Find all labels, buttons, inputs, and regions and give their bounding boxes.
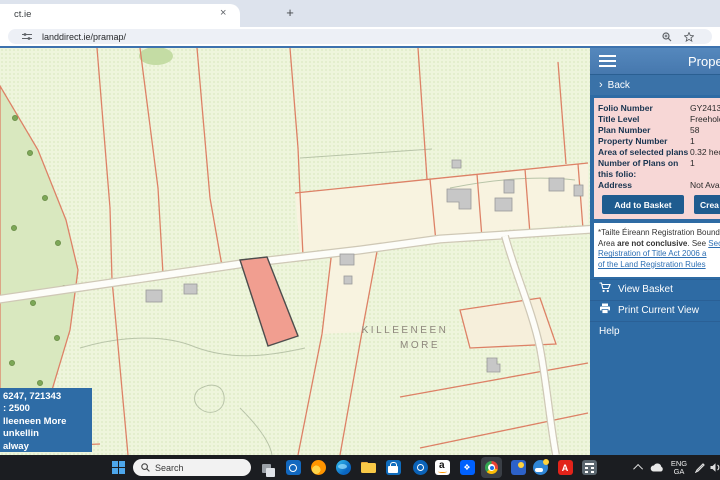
note-link-section[interactable]: Sec (708, 239, 720, 248)
acrobat-icon[interactable]: A (555, 455, 575, 480)
browser-tab[interactable]: ct.ie × (0, 4, 240, 27)
file-explorer-icon[interactable] (358, 455, 378, 480)
new-tab-button[interactable]: + (281, 5, 299, 23)
info-scale: : 2500 (3, 403, 92, 415)
svg-text:KILLEENEEN: KILLEENEEN (362, 325, 449, 336)
field-title-level: Title Level Freehold (598, 114, 720, 125)
address-bar[interactable]: landdirect.ie/pramap/ (8, 29, 712, 44)
panel-title: Prope (688, 54, 720, 69)
back-chevron-icon: › (599, 79, 603, 91)
back-label: Back (608, 80, 630, 91)
zoom-page-icon[interactable] (662, 32, 672, 42)
view-basket-label: View Basket (618, 284, 673, 295)
field-property-number: Property Number 1 (598, 136, 720, 147)
search-icon (141, 463, 150, 472)
townland-label: KILLEENEEN MORE (362, 325, 449, 351)
site-settings-icon[interactable] (22, 32, 32, 41)
amazon-icon[interactable]: a (432, 455, 452, 480)
back-button[interactable]: ›Back (590, 74, 720, 95)
calculator-icon[interactable] (579, 455, 599, 480)
taskbar: Search a ❖ (0, 455, 720, 480)
weather-icon[interactable] (530, 455, 550, 480)
taskbar-search[interactable]: Search (133, 459, 251, 476)
create-button[interactable]: Crea (694, 195, 720, 214)
start-button[interactable] (108, 455, 128, 480)
print-label: Print Current View (618, 305, 699, 316)
registration-note: *Tailte Éireann Registration Bound Area … (594, 223, 720, 277)
location-info-box: 6247, 721343 : 2500 lleeneen More unkell… (0, 388, 92, 452)
view-basket-button[interactable]: View Basket (590, 279, 720, 300)
language-line2: GA (671, 468, 687, 476)
screen: ct.ie × + landdirect.ie/pramap/ (0, 0, 720, 480)
info-barony: unkellin (3, 428, 92, 440)
browser-toolbar: landdirect.ie/pramap/ (0, 27, 720, 46)
woodland-area (0, 86, 78, 440)
hidden-icons-chevron[interactable] (632, 455, 646, 480)
onedrive-icon[interactable] (648, 455, 666, 480)
info-county: alway (3, 441, 92, 452)
printer-icon (599, 303, 611, 314)
volume-icon[interactable] (708, 455, 720, 480)
add-to-basket-button[interactable]: Add to Basket (602, 195, 684, 214)
scrub-patch (139, 48, 173, 65)
browser-tabstrip: ct.ie × + (0, 0, 720, 27)
note-link-act[interactable]: Registration of Title Act 2006 a (598, 249, 707, 258)
bookmark-star-icon[interactable] (684, 32, 694, 42)
menu-hamburger-icon[interactable] (599, 55, 616, 67)
basket-icon (599, 282, 611, 293)
field-folio-number: Folio Number GY24134F (598, 103, 720, 114)
svg-text:MORE: MORE (400, 340, 440, 351)
note-line-1: *Tailte Éireann Registration Bound (598, 228, 720, 237)
help-button[interactable]: Help (590, 321, 720, 342)
chrome-icon[interactable] (481, 457, 502, 478)
search-label: Search (155, 463, 184, 473)
folio-details-box: Folio Number GY24134F Title Level Freeho… (594, 98, 720, 219)
dropbox-icon[interactable]: ❖ (457, 455, 477, 480)
field-area: Area of selected plans 0.32 hecta (598, 147, 720, 158)
note-link-rules[interactable]: of the Land Registration Rules (598, 260, 706, 269)
language-indicator[interactable]: ENGGA (668, 455, 690, 480)
task-view-icon[interactable] (258, 455, 278, 480)
firefox-icon[interactable] (308, 455, 328, 480)
field-address: Address Not Availa (598, 180, 720, 191)
field-number-of-plans: Number of Plans on this folio: 1 (598, 158, 720, 180)
tab-title: ct.ie (14, 9, 31, 20)
help-label: Help (599, 326, 620, 337)
outlook-icon[interactable] (410, 455, 430, 480)
info-townland: lleeneen More (3, 416, 92, 428)
pen-icon[interactable] (692, 455, 708, 480)
photos-icon[interactable] (508, 455, 528, 480)
print-current-view-button[interactable]: Print Current View (590, 300, 720, 321)
store-icon[interactable] (383, 455, 403, 480)
tab-close-icon[interactable]: × (220, 7, 226, 19)
folio-buttons-row: Add to Basket Crea (598, 195, 720, 214)
outlook-icon[interactable] (283, 455, 303, 480)
property-panel: Prope ›Back Folio Number GY24134F Title … (590, 48, 720, 455)
map-viewport[interactable]: KILLEENEEN MORE 6247, 721343 : 2500 llee… (0, 48, 720, 455)
info-coordinates: 6247, 721343 (3, 391, 92, 403)
url-text[interactable]: landdirect.ie/pramap/ (42, 32, 126, 42)
field-plan-number: Plan Number 58 (598, 125, 720, 136)
selected-parcel[interactable] (240, 257, 298, 346)
panel-header: Prope (590, 48, 720, 74)
note-line-2: Area (598, 239, 617, 248)
edge-icon[interactable] (333, 455, 353, 480)
